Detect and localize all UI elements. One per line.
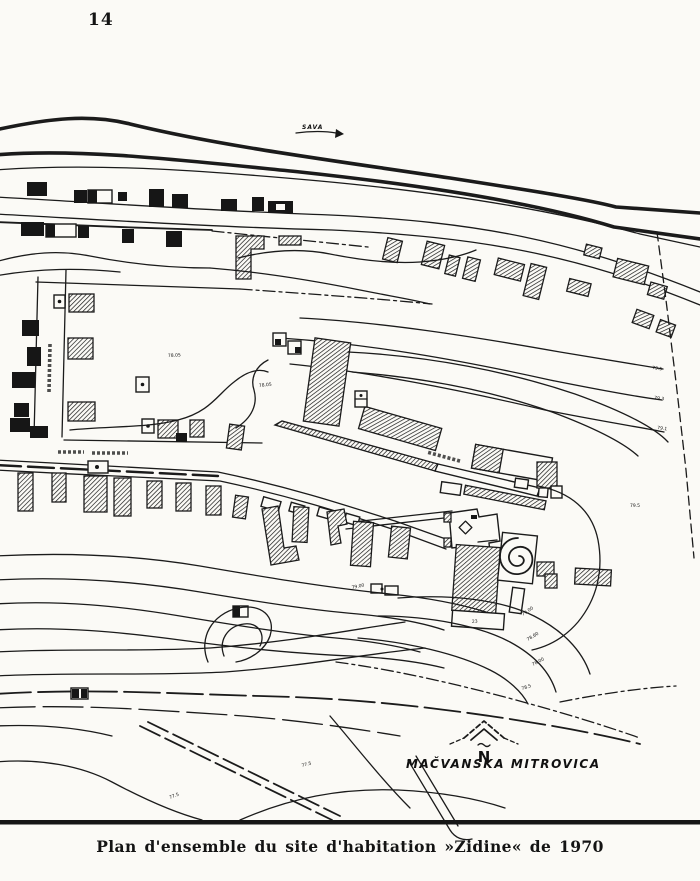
road-south-edge	[0, 470, 446, 549]
contour-line	[300, 318, 663, 369]
contour-line	[0, 253, 210, 268]
elevation-label: 78.60	[526, 631, 540, 643]
building	[359, 406, 442, 450]
house	[252, 197, 264, 211]
house	[10, 418, 30, 432]
courtyard-tab	[444, 538, 451, 547]
river-flow-arrow	[296, 132, 336, 134]
house	[68, 402, 95, 421]
shed-dot	[381, 588, 384, 591]
enclosure-top-edge	[36, 282, 240, 289]
dirt-road-edge	[148, 722, 340, 816]
north-arrow-wing	[504, 738, 518, 744]
house	[172, 194, 188, 208]
farmstead-mark	[275, 339, 281, 345]
house	[27, 182, 47, 196]
house	[221, 199, 237, 211]
large-tilted-building	[303, 338, 350, 426]
house	[27, 347, 41, 366]
house	[149, 189, 164, 207]
house	[190, 420, 204, 437]
street-label-smudge	[428, 452, 462, 461]
house	[68, 338, 93, 359]
house	[279, 236, 301, 245]
building	[440, 482, 461, 496]
contour-line	[0, 648, 425, 676]
house	[206, 486, 221, 515]
house	[584, 244, 602, 259]
house-mark	[81, 689, 87, 698]
middle-road	[0, 460, 453, 549]
elevation-label: 78.05	[168, 352, 181, 359]
house	[567, 279, 591, 297]
house	[166, 231, 182, 247]
excavation-cluster: 23	[440, 462, 611, 630]
footpath-c	[330, 716, 410, 808]
house	[613, 258, 649, 284]
contour-line	[358, 638, 528, 704]
map-caption: Plan d'ensemble du site d'habitation »Zi…	[0, 837, 700, 856]
elevation-label: 79.3	[654, 395, 665, 402]
house	[421, 241, 444, 269]
elevation-label: 79.5	[652, 365, 663, 372]
river-label: SAVA	[302, 124, 323, 131]
river-flow-arrowhead-icon	[335, 129, 344, 138]
boundary-dashed	[657, 232, 694, 558]
river-sava: SAVA	[0, 118, 700, 239]
contour-line	[0, 761, 202, 820]
house	[350, 521, 373, 566]
house	[69, 294, 94, 312]
l-shaped-building	[327, 509, 347, 545]
house	[78, 226, 89, 238]
house	[176, 483, 191, 511]
elevation-label: 79.00	[351, 582, 365, 591]
building	[545, 574, 557, 588]
elevation-label: 78.05	[259, 382, 273, 389]
house	[276, 204, 285, 210]
building	[514, 478, 528, 489]
boundary-dashdot	[336, 662, 640, 738]
house	[463, 257, 481, 281]
houses-row-upper	[27, 182, 293, 213]
track-dashed	[0, 691, 640, 744]
house	[292, 507, 309, 543]
north-arrow-tilde	[478, 744, 490, 747]
house	[523, 264, 547, 300]
house	[14, 403, 29, 417]
house	[52, 473, 66, 502]
elevation-label: 77.5	[169, 791, 181, 800]
caption-rule	[0, 820, 700, 825]
contour-line	[0, 269, 120, 276]
place-label: MAČVANSKA MITROVICA	[406, 756, 601, 771]
house	[84, 476, 107, 512]
house	[12, 372, 35, 388]
house	[21, 222, 44, 236]
road-upper-south-edge	[0, 214, 700, 305]
contour-line	[352, 372, 638, 456]
courtyard-tab	[444, 513, 451, 522]
building	[551, 486, 562, 498]
house	[388, 526, 410, 559]
house	[656, 320, 675, 338]
site-plan-map: SAVA	[0, 0, 700, 881]
house	[494, 258, 524, 281]
building-number: 23	[472, 619, 478, 625]
house	[176, 433, 187, 442]
courtyard-mark	[471, 515, 477, 519]
twin-marker-dot	[360, 394, 363, 397]
enclosure-top-dashdot	[240, 289, 432, 304]
house	[118, 192, 127, 201]
houses-row-south	[18, 473, 411, 617]
house	[632, 309, 654, 328]
house	[88, 190, 97, 203]
road-north-edge	[0, 460, 452, 541]
house	[18, 473, 33, 511]
elevation-label: 78.5	[521, 683, 533, 692]
house	[122, 229, 134, 243]
contour-lines: 79.5 79.00 79.00 78.60 78.00 78.5 77.5 7…	[0, 250, 676, 840]
dirt-road-edge	[140, 726, 332, 820]
trench-annex	[452, 610, 505, 630]
house	[74, 190, 87, 203]
building-wing	[472, 444, 504, 472]
houses-row-second	[21, 222, 301, 279]
survey-marker-dot	[141, 383, 145, 387]
house-mark	[72, 689, 79, 698]
elevation-label: 79.5	[630, 503, 640, 509]
survey-marker-dot	[58, 300, 62, 304]
building	[575, 568, 612, 586]
contour-line	[0, 725, 112, 736]
houses-row-east	[383, 238, 676, 338]
road-marker-dot	[95, 465, 99, 469]
farmstead-mark	[295, 347, 301, 353]
house	[383, 238, 403, 263]
house	[114, 478, 131, 516]
building	[537, 462, 557, 488]
track-dashed	[0, 707, 400, 736]
north-arrow-chevron-inner	[471, 729, 497, 740]
footpath-a	[408, 760, 472, 840]
boundary-dashdot	[560, 686, 676, 702]
contour-line	[0, 622, 405, 652]
south-west-house	[71, 688, 88, 699]
elevation-label: 77.5	[301, 761, 312, 769]
house	[30, 426, 48, 438]
house	[147, 481, 162, 508]
house	[22, 320, 39, 336]
house	[233, 495, 249, 519]
building	[509, 587, 524, 613]
street-name-smudge	[49, 344, 50, 392]
house	[46, 224, 55, 237]
north-arrow-wing	[450, 738, 464, 744]
center-buildings: 78.05	[226, 333, 552, 496]
